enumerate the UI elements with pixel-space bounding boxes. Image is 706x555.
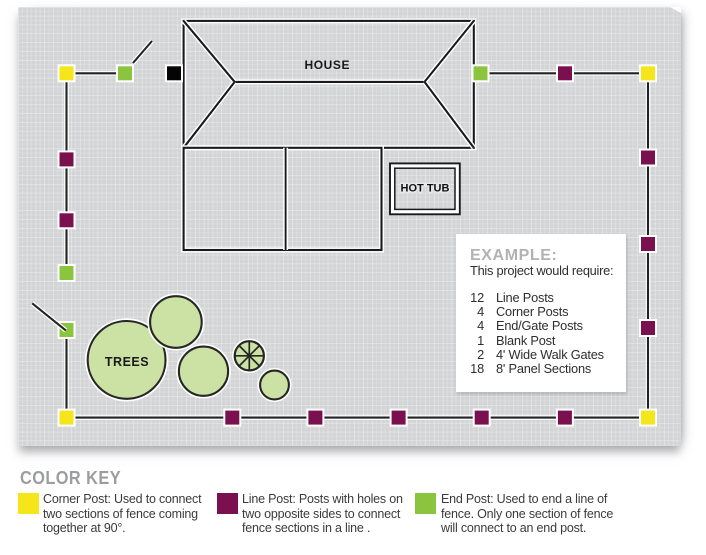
svg-text:HOUSE: HOUSE <box>304 58 350 72</box>
svg-text:HOT TUB: HOT TUB <box>401 182 450 194</box>
svg-text:TREES: TREES <box>105 355 149 369</box>
